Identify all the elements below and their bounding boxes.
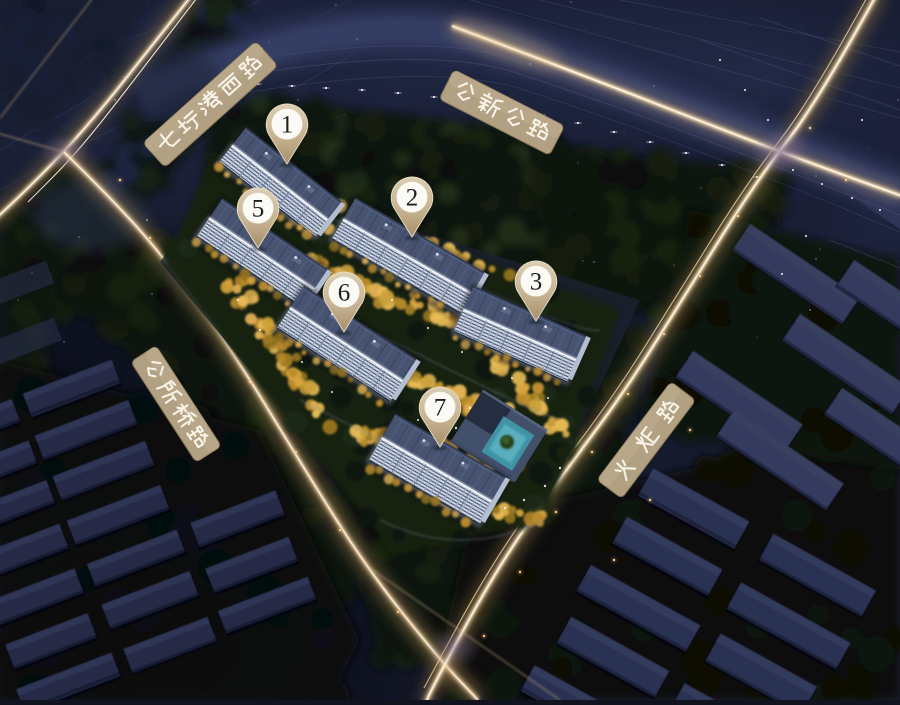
svg-text:5: 5	[252, 196, 265, 223]
svg-text:1: 1	[281, 112, 294, 139]
svg-text:6: 6	[338, 280, 351, 307]
svg-text:2: 2	[406, 185, 419, 212]
svg-text:7: 7	[434, 395, 447, 422]
svg-text:3: 3	[530, 269, 543, 296]
